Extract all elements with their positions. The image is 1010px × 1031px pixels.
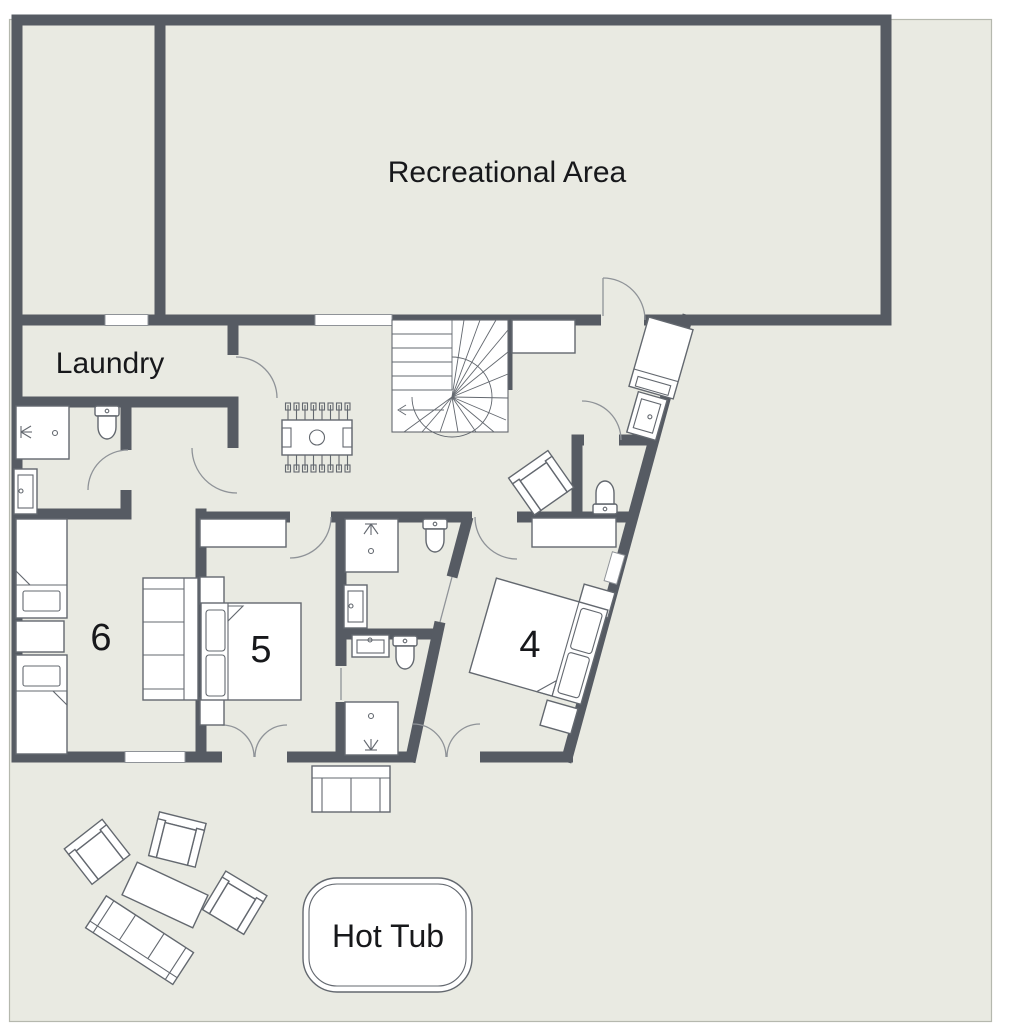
- stair-landing-counter: [512, 320, 575, 353]
- wardrobe: [200, 519, 286, 547]
- label-bedroom-5: 5: [250, 629, 271, 671]
- sink: [344, 585, 367, 628]
- window: [125, 752, 185, 763]
- label-recreational-area: Recreational Area: [388, 156, 627, 189]
- label-bedroom-6: 6: [90, 617, 111, 659]
- single-bed: [16, 655, 67, 754]
- dresser: [532, 518, 616, 547]
- floor-plan-canvas: Recreational Area Laundry 6 5 4 Hot Tub: [0, 0, 1010, 1031]
- single-bed: [16, 519, 67, 618]
- floor-plan: Recreational Area Laundry 6 5 4 Hot Tub: [0, 0, 1010, 1031]
- nightstand: [16, 621, 64, 652]
- label-hot-tub: Hot Tub: [332, 918, 444, 954]
- sink: [352, 635, 389, 657]
- sink: [14, 469, 37, 514]
- sofa: [143, 578, 198, 700]
- nightstand: [200, 577, 224, 604]
- label-laundry: Laundry: [56, 347, 164, 380]
- label-bedroom-4: 4: [519, 624, 540, 666]
- window: [105, 315, 148, 326]
- nightstand: [200, 698, 224, 725]
- loveseat: [312, 766, 390, 812]
- window: [315, 315, 392, 326]
